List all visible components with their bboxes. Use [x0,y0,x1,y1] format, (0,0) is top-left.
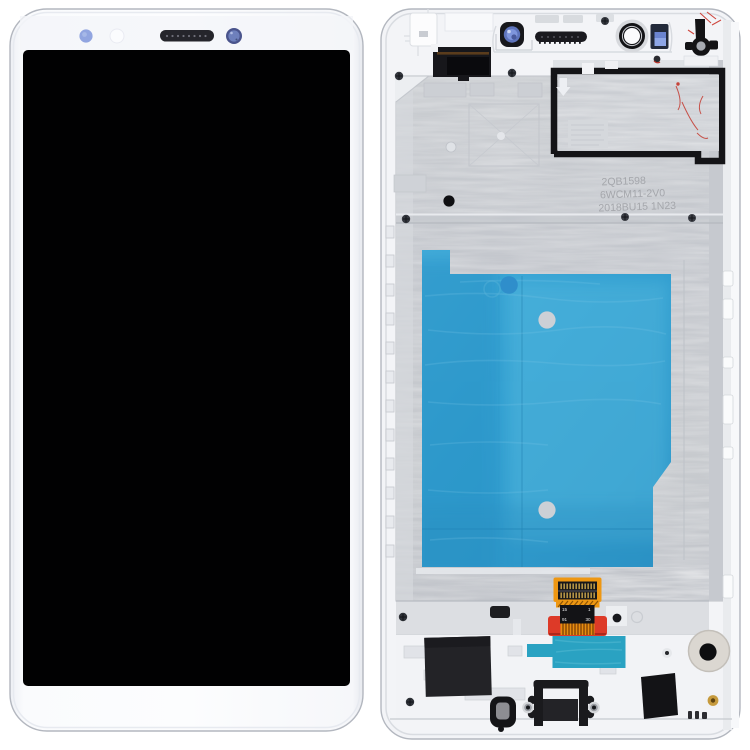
svg-text:91: 91 [562,617,568,622]
svg-text:6WCM11-2V0: 6WCM11-2V0 [600,187,666,201]
svg-text:1: 1 [588,607,591,612]
svg-text:2QB1598: 2QB1598 [601,175,646,189]
svg-text:30: 30 [586,617,592,622]
svg-text:15: 15 [562,607,568,612]
